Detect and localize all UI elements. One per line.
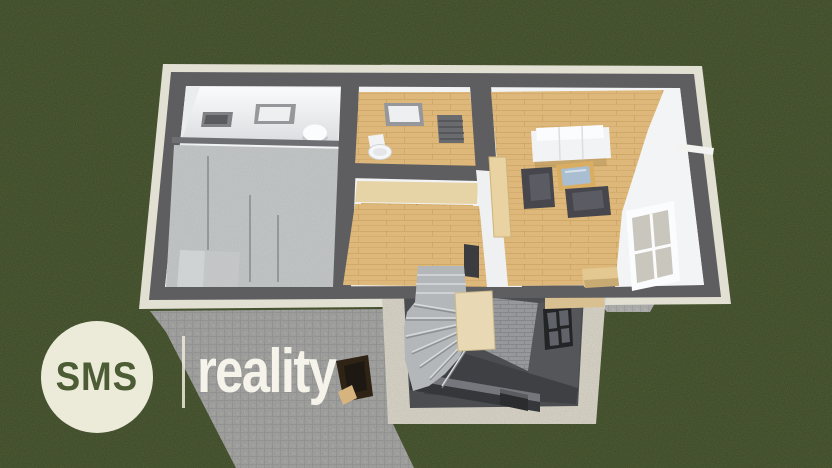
- hallway: [343, 181, 490, 287]
- garage-door-panel: [177, 250, 205, 287]
- sideboard: [582, 267, 619, 288]
- plywood-board: [455, 291, 495, 351]
- wardrobe-top: [355, 181, 478, 204]
- logo-circle: SMS: [41, 321, 153, 433]
- living-room: [489, 88, 704, 291]
- skylight-glass: [258, 107, 291, 121]
- floorplan-render: SMS reality: [0, 0, 832, 468]
- pit-window-pane: [561, 328, 570, 343]
- table-glass: [561, 166, 591, 186]
- bathroom-skylight: [384, 103, 424, 126]
- armchair-cushion: [572, 190, 604, 211]
- house: [149, 72, 721, 300]
- coffee-table: [556, 161, 596, 191]
- garage-skylight: [254, 104, 296, 124]
- pit-window: [543, 305, 573, 350]
- logo-divider: [182, 336, 185, 408]
- garage-door-panel: [203, 251, 240, 287]
- garage-room: [165, 86, 351, 290]
- toilet-seat: [373, 148, 387, 156]
- logo-suffix-text: reality: [197, 341, 335, 403]
- armchair-left: [521, 167, 555, 209]
- sofa: [531, 125, 611, 169]
- living-room-window: [626, 201, 680, 291]
- armchair-cushion: [529, 173, 551, 201]
- pit-window-pane: [559, 310, 569, 326]
- ceiling-vent-grille: [204, 115, 228, 124]
- ceiling-lamp: [303, 125, 327, 142]
- hallway-niche: [464, 244, 479, 278]
- wall-bath-hall: [349, 163, 480, 181]
- pit-window-pane: [549, 331, 559, 346]
- skylight-glass: [388, 106, 420, 122]
- armchair-bottom: [565, 186, 611, 218]
- radiator: [437, 115, 464, 143]
- logo-brand-text: SMS: [56, 355, 139, 400]
- bathroom: [355, 92, 477, 167]
